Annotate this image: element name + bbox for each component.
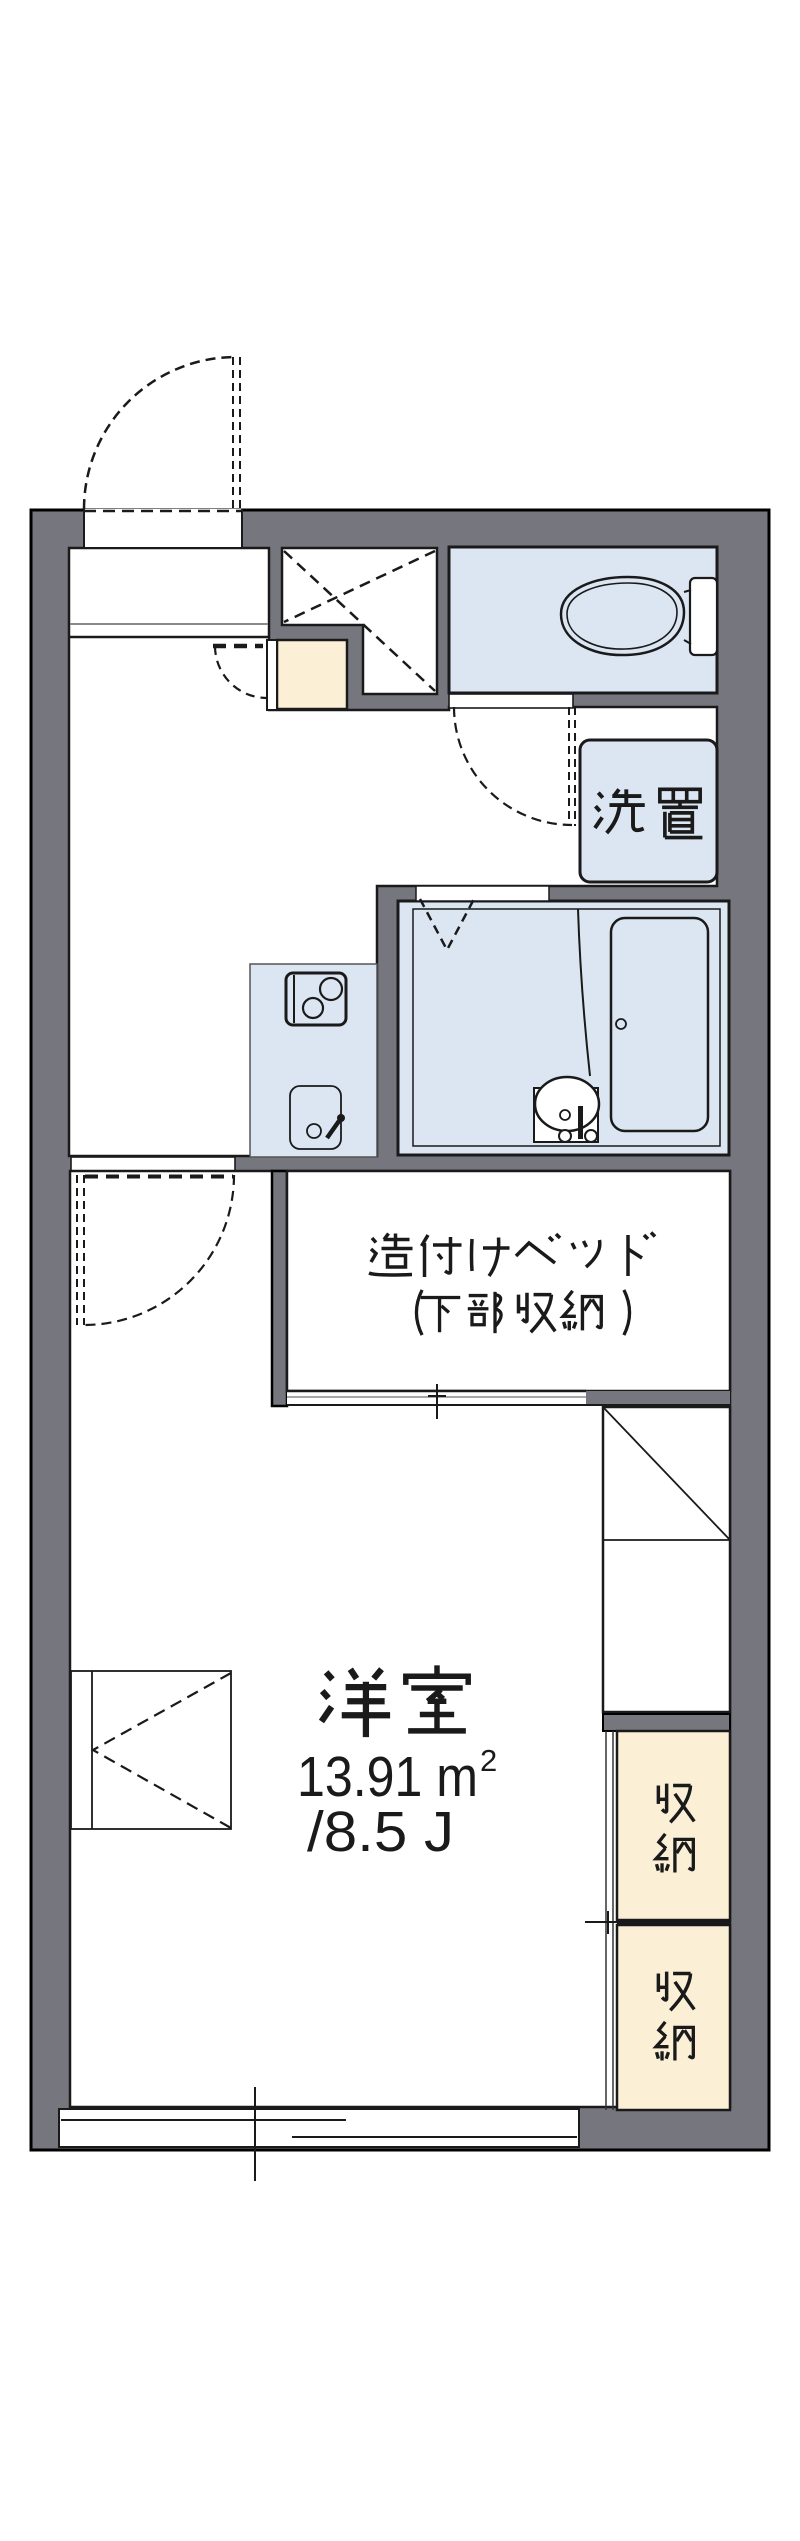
svg-text:/8.5 J: /8.5 J xyxy=(307,1800,454,1864)
svg-text:2: 2 xyxy=(480,1743,497,1778)
